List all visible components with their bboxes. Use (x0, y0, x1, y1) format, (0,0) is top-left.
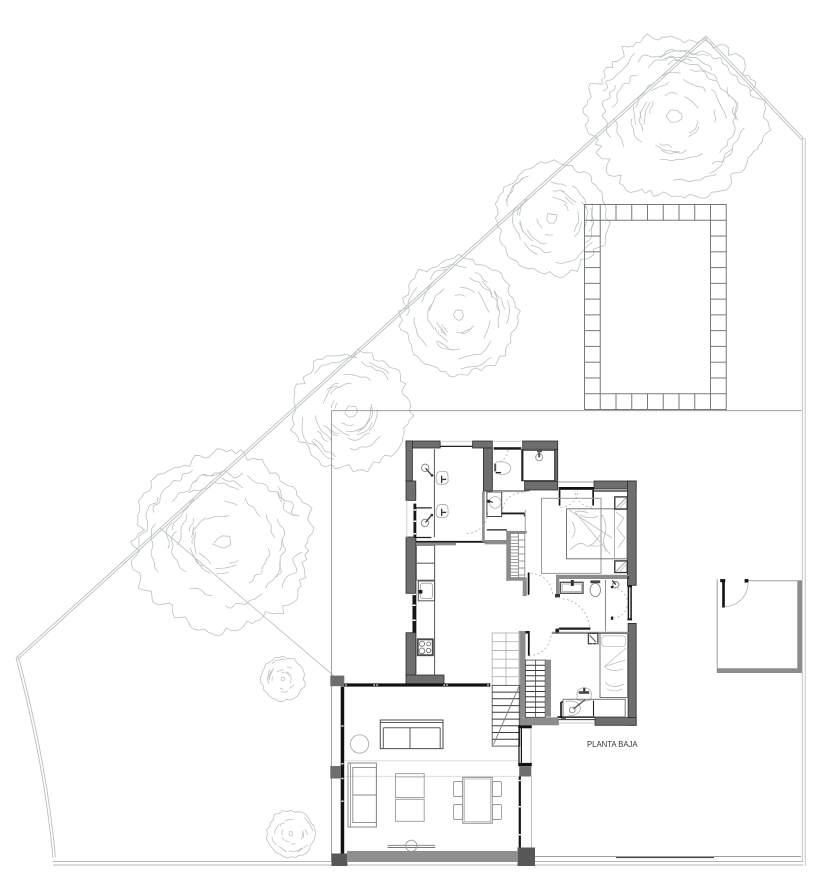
svg-text:PLANTA BAJA: PLANTA BAJA (587, 739, 638, 749)
